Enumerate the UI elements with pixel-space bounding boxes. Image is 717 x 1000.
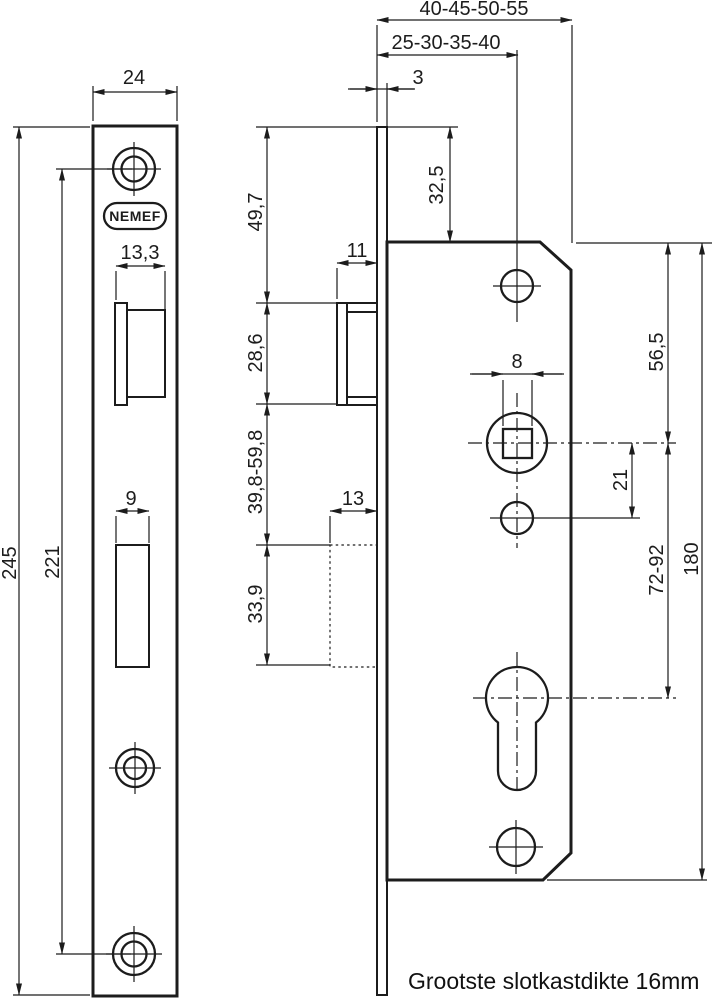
dim-case-depth-range: 40-45-50-55 (420, 0, 529, 20)
technical-drawing-page: NEMEF (0, 0, 717, 1000)
dim-screw-center-distance: 221 (42, 545, 64, 578)
dim-backset-range: 25-30-35-40 (392, 32, 501, 54)
dim-top-to-case: 32,5 (426, 166, 448, 205)
deadbolt-cutout-front (116, 545, 149, 667)
lock-dimension-drawing: NEMEF (0, 0, 717, 1000)
dim-latch-to-deadbolt-range: 39,8-59,8 (245, 430, 267, 515)
lock-case-outline (387, 242, 571, 880)
latch-side (337, 303, 377, 405)
dim-top-to-latch: 49,7 (245, 193, 267, 232)
dim-faceplate-height: 245 (0, 546, 21, 579)
dim-spindle-to-aux-hole: 21 (610, 469, 632, 491)
screw-hole-middle-icon (109, 742, 161, 794)
dim-latch-protrusion: 11 (347, 240, 368, 262)
spindle-hole-icon (487, 393, 547, 548)
dim-deadbolt-protrusion: 13 (342, 488, 364, 510)
dim-faceplate-width: 24 (123, 67, 145, 89)
extension-lines (13, 25, 712, 995)
euro-cylinder-hole-icon (486, 652, 548, 795)
dim-case-height: 180 (681, 542, 703, 575)
dim-case-top-to-spindle: 56,5 (646, 333, 668, 372)
latch-front (115, 303, 165, 405)
dim-latch-height: 28,6 (245, 334, 267, 373)
footer-note: Grootste slotkastdikte 16mm (408, 968, 699, 994)
dim-faceplate-thickness: 3 (412, 67, 423, 89)
case-screw-hole-bottom-icon (489, 820, 543, 874)
deadbolt-hidden (330, 545, 377, 667)
dim-spindle-to-cylinder-range: 72-92 (646, 544, 668, 595)
dim-deadbolt-cutout-width: 9 (125, 488, 136, 510)
dim-spindle-square-size: 8 (511, 351, 522, 373)
dim-deadbolt-height: 33,9 (245, 585, 267, 624)
nemef-logo: NEMEF (104, 203, 166, 229)
nemef-logo-text: NEMEF (109, 208, 161, 224)
dim-latch-cutout-width: 13,3 (121, 242, 160, 264)
